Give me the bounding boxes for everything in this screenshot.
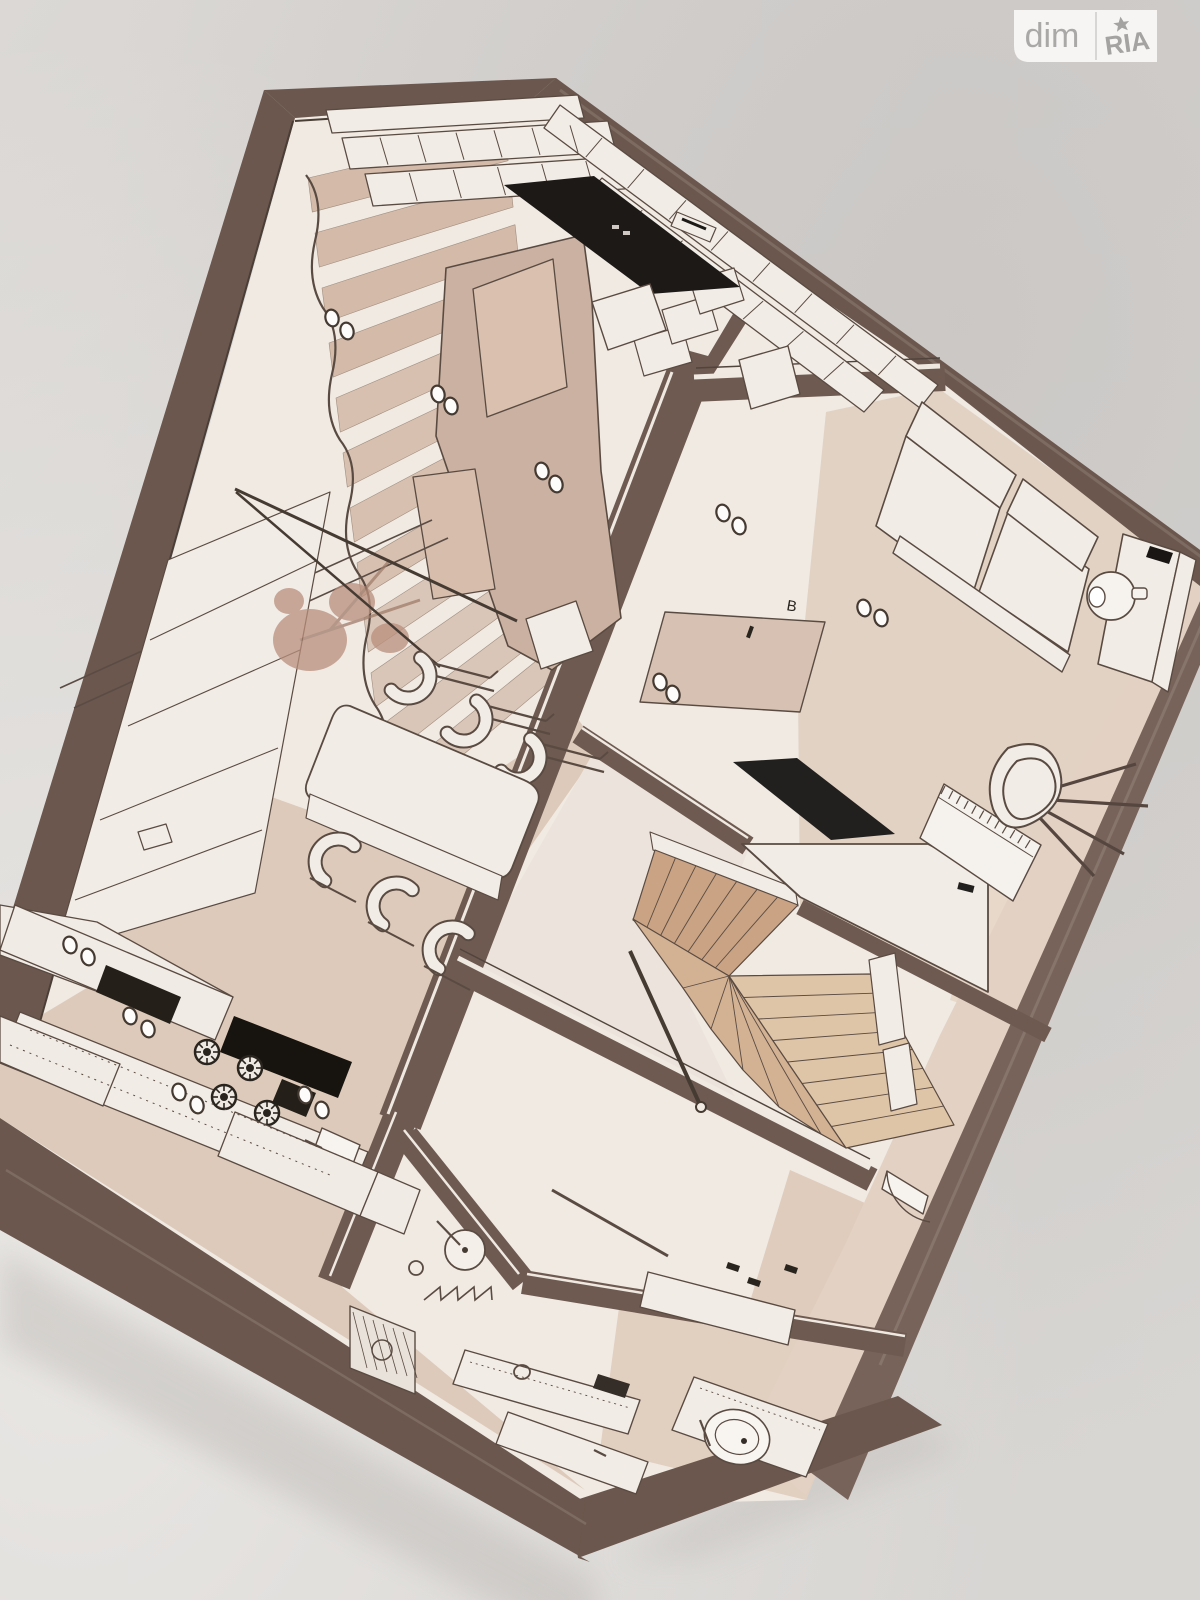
svg-text:RIA: RIA: [1103, 25, 1152, 61]
svg-text:dim: dim: [1025, 17, 1080, 55]
